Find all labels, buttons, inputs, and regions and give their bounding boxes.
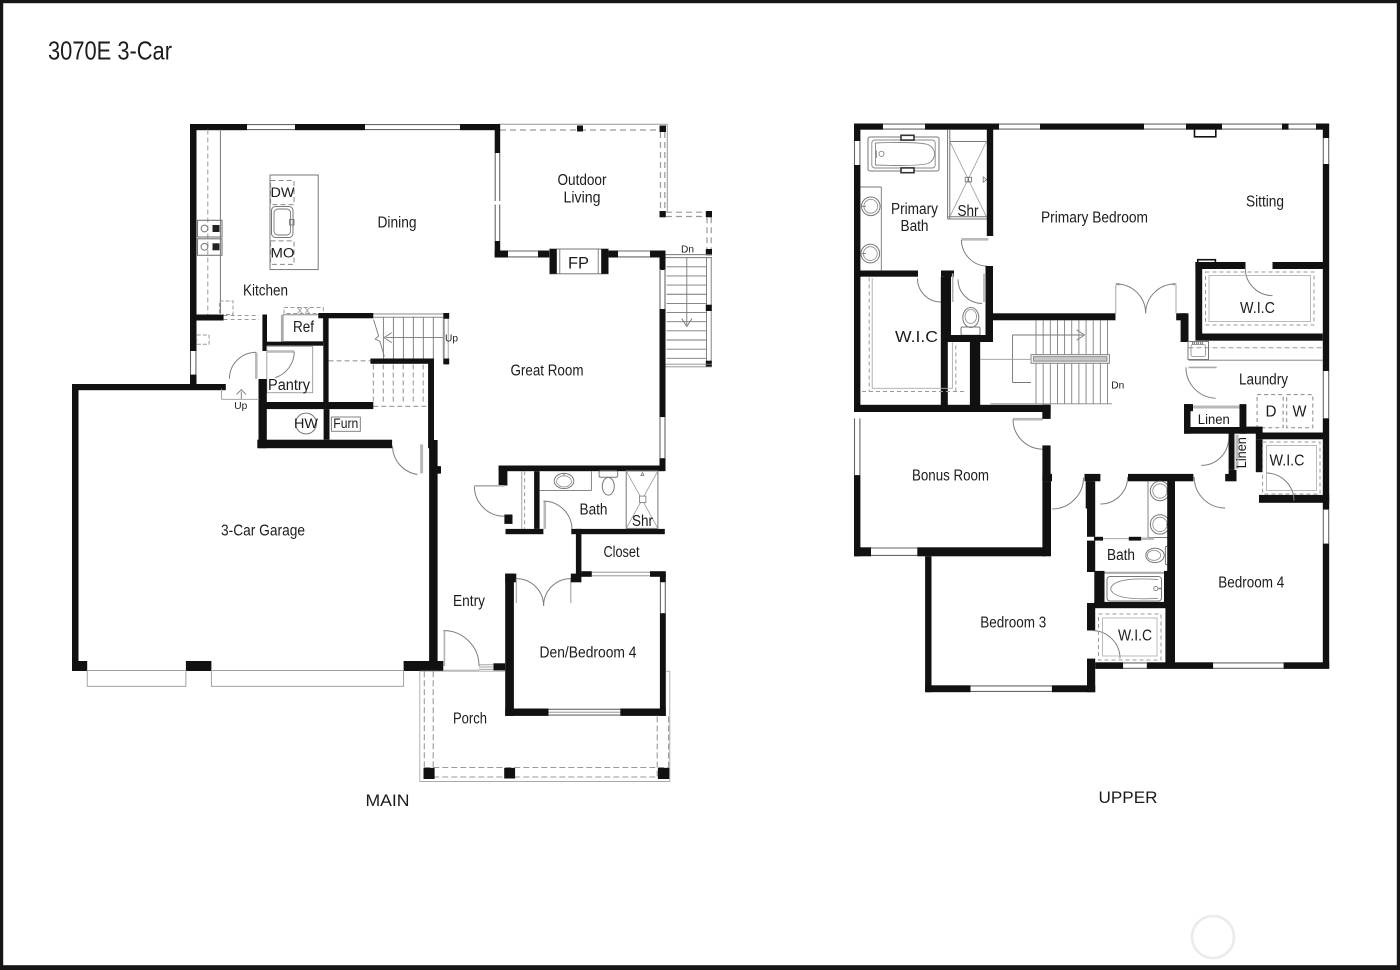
svg-text:Great Room: Great Room [511,363,584,380]
svg-text:Linen: Linen [1198,412,1230,427]
svg-text:MO: MO [271,246,295,261]
svg-text:Sitting: Sitting [1246,194,1284,211]
svg-text:Bath: Bath [1107,547,1135,564]
svg-text:Up: Up [234,400,247,412]
svg-text:HW: HW [294,416,318,431]
svg-text:Primary Bedroom: Primary Bedroom [1041,210,1148,227]
svg-text:Closet: Closet [604,544,641,561]
svg-text:Dn: Dn [681,244,694,256]
svg-text:W.I.C: W.I.C [1118,627,1152,644]
svg-text:Porch: Porch [453,711,487,728]
svg-text:Ref: Ref [293,319,315,336]
svg-text:W.I.C: W.I.C [1240,300,1275,317]
svg-text:Bedroom 3: Bedroom 3 [980,615,1046,632]
svg-text:Bonus Room: Bonus Room [912,468,989,485]
svg-text:Outdoor: Outdoor [558,172,607,189]
svg-text:Up: Up [445,332,458,344]
svg-text:UPPER: UPPER [1099,789,1158,807]
svg-text:3070E 3-Car: 3070E 3-Car [48,36,172,66]
svg-text:Dn: Dn [1111,379,1124,391]
svg-text:Entry: Entry [453,593,485,610]
svg-text:Furn: Furn [333,416,358,431]
svg-text:D: D [1266,404,1277,421]
svg-text:Bedroom 4: Bedroom 4 [1218,575,1284,592]
svg-text:Shr: Shr [958,203,979,220]
svg-text:W: W [1293,404,1307,421]
svg-text:Shr: Shr [632,513,653,530]
svg-text:Linen: Linen [1234,437,1249,468]
svg-text:Kitchen: Kitchen [243,283,288,300]
svg-text:Living: Living [564,190,601,207]
svg-text:FP: FP [568,255,589,273]
svg-text:Pantry: Pantry [268,377,310,394]
svg-text:Den/Bedroom 4: Den/Bedroom 4 [540,645,637,662]
svg-text:3-Car Garage: 3-Car Garage [221,523,305,540]
svg-text:Primary: Primary [891,201,938,218]
svg-text:Bath: Bath [580,502,608,519]
svg-text:MAIN: MAIN [366,792,410,810]
svg-text:Laundry: Laundry [1239,372,1288,389]
svg-text:DW: DW [271,185,295,200]
svg-text:W.I.C: W.I.C [895,329,938,346]
svg-text:Dining: Dining [378,214,417,231]
svg-text:W.I.C: W.I.C [1270,453,1305,470]
svg-text:Bath: Bath [901,218,929,235]
